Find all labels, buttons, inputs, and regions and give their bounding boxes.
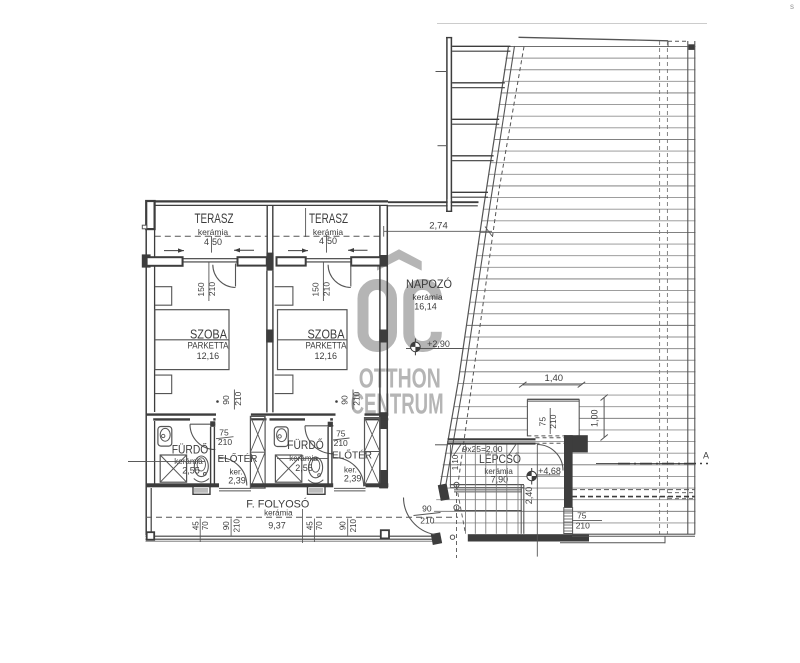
svg-text:s: s: [790, 2, 794, 11]
svg-text:150: 150: [311, 282, 321, 296]
svg-text:90: 90: [221, 395, 231, 405]
svg-text:PARKETTA: PARKETTA: [188, 341, 229, 351]
svg-text:+2,90: +2,90: [427, 339, 450, 349]
svg-text:70: 70: [315, 521, 324, 530]
svg-text:7,90: 7,90: [491, 474, 509, 484]
svg-text:12,16: 12,16: [315, 351, 338, 361]
svg-text:90: 90: [339, 395, 349, 405]
svg-text:2,40: 2,40: [524, 487, 534, 505]
svg-text:ELŐTÉR: ELŐTÉR: [218, 451, 258, 465]
svg-text:SZOBA: SZOBA: [190, 328, 228, 342]
svg-text:ELŐTÉR: ELŐTÉR: [332, 447, 372, 461]
svg-text:SZOBA: SZOBA: [308, 328, 346, 342]
svg-text:210: 210: [352, 391, 362, 405]
svg-text:90: 90: [222, 521, 231, 530]
svg-text:150: 150: [196, 282, 206, 296]
svg-text:75: 75: [336, 429, 346, 439]
svg-text:16,14: 16,14: [414, 302, 437, 312]
svg-text:FÜRDŐ: FÜRDŐ: [287, 438, 324, 452]
svg-text:4: 4: [319, 236, 324, 246]
svg-text:LÉPCSŐ: LÉPCSŐ: [479, 452, 521, 466]
svg-text:NAPOZÓ: NAPOZÓ: [406, 278, 452, 291]
svg-text:50: 50: [212, 237, 222, 247]
svg-text:70: 70: [201, 521, 210, 530]
svg-text:FÜRDŐ: FÜRDŐ: [172, 443, 209, 457]
svg-text:1,10: 1,10: [451, 454, 460, 470]
svg-text:210: 210: [576, 521, 590, 531]
svg-text:2,39: 2,39: [228, 475, 246, 485]
svg-text:90: 90: [339, 521, 348, 530]
svg-text:9,37: 9,37: [268, 521, 286, 531]
svg-text:210: 210: [207, 282, 217, 296]
svg-text:TERASZ: TERASZ: [309, 210, 348, 226]
svg-text:90: 90: [422, 504, 432, 514]
svg-text:1,00: 1,00: [590, 409, 600, 427]
svg-text:1,40: 1,40: [545, 373, 564, 384]
svg-text:75: 75: [537, 417, 547, 427]
svg-text:45: 45: [306, 521, 315, 530]
svg-text:TERASZ: TERASZ: [195, 210, 234, 226]
svg-text:45: 45: [192, 521, 201, 530]
svg-text:2,74: 2,74: [429, 221, 448, 232]
svg-text:210: 210: [233, 391, 243, 405]
svg-text:4: 4: [204, 237, 209, 247]
svg-text:210: 210: [548, 414, 558, 428]
svg-text:PARKETTA: PARKETTA: [306, 341, 347, 351]
svg-text:2,55: 2,55: [182, 466, 200, 476]
svg-text:75: 75: [577, 511, 587, 521]
svg-text:50: 50: [327, 236, 337, 246]
svg-text:210: 210: [232, 518, 241, 532]
svg-text:210: 210: [349, 518, 358, 532]
svg-text:2,55: 2,55: [295, 463, 313, 473]
svg-text:210: 210: [420, 516, 434, 526]
svg-text:kerámia: kerámia: [264, 509, 293, 518]
svg-text:+4,68: +4,68: [538, 466, 561, 476]
svg-text:12,16: 12,16: [197, 351, 220, 361]
svg-text:kerámia: kerámia: [198, 227, 229, 237]
svg-text:A: A: [703, 451, 709, 461]
svg-text:2,39: 2,39: [344, 473, 362, 483]
svg-text:210: 210: [322, 282, 332, 296]
